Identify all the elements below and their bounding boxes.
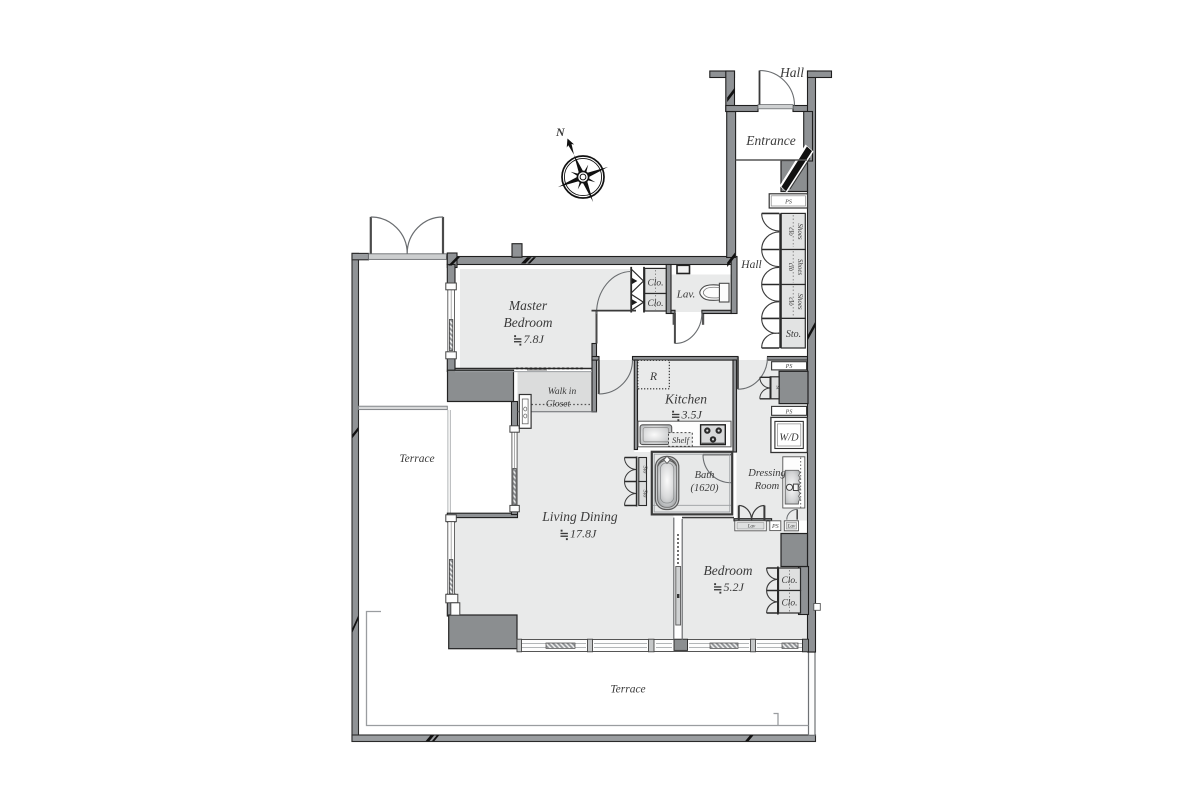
svg-text:PS: PS (785, 364, 793, 370)
svg-text:Shoes: Shoes (796, 293, 804, 310)
svg-text:7.8J: 7.8J (524, 332, 545, 346)
svg-text:Terrace: Terrace (399, 453, 434, 465)
svg-text:Entrance: Entrance (745, 133, 796, 148)
svg-text:PS: PS (785, 410, 793, 416)
svg-text:Living Dining: Living Dining (541, 509, 618, 524)
svg-text:Shoes: Shoes (796, 223, 804, 240)
svg-text:W/D: W/D (779, 433, 799, 444)
svg-text:Hall: Hall (779, 65, 804, 80)
svg-text:Master: Master (508, 298, 548, 313)
svg-text:3.5J: 3.5J (681, 408, 703, 422)
svg-text:Shoes: Shoes (796, 259, 804, 276)
svg-text:Clo.: Clo. (647, 279, 663, 289)
svg-text:Clo.: Clo. (781, 599, 797, 609)
svg-text:clo: clo (787, 263, 795, 272)
svg-text:Terrace: Terrace (610, 684, 645, 696)
svg-text:Lav: Lav (747, 525, 756, 530)
svg-text:Lav.: Lav. (676, 289, 695, 301)
svg-text:(1620): (1620) (691, 483, 719, 494)
svg-text:5.2J: 5.2J (724, 580, 745, 594)
svg-text:Shelf: Shelf (672, 435, 691, 445)
svg-text:clo: clo (787, 297, 795, 306)
svg-text:clo: clo (787, 227, 795, 236)
svg-text:Bath: Bath (695, 470, 715, 481)
svg-text:Sto: Sto (642, 466, 648, 474)
svg-text:Clo.: Clo. (647, 299, 663, 309)
svg-text:Sto: Sto (642, 490, 648, 498)
svg-text:17.8J: 17.8J (570, 527, 597, 541)
svg-text:Closet: Closet (546, 400, 571, 410)
svg-text:Walk in: Walk in (548, 387, 577, 397)
svg-text:Room: Room (754, 481, 780, 492)
svg-text:Clo.: Clo. (781, 576, 797, 586)
svg-text:PS: PS (771, 524, 779, 530)
svg-text:st: st (775, 385, 781, 389)
svg-text:Kitchen: Kitchen (664, 392, 707, 407)
svg-text:PS: PS (784, 200, 792, 206)
svg-text:Hall: Hall (740, 259, 761, 271)
svg-text:Dressing: Dressing (747, 468, 786, 479)
svg-text:N: N (555, 125, 566, 139)
svg-text:Bedroom: Bedroom (504, 315, 553, 330)
svg-text:Bedroom: Bedroom (704, 563, 753, 578)
svg-text:R: R (649, 371, 657, 383)
svg-text:Lav: Lav (787, 525, 796, 530)
svg-text:Sto.: Sto. (786, 329, 801, 340)
